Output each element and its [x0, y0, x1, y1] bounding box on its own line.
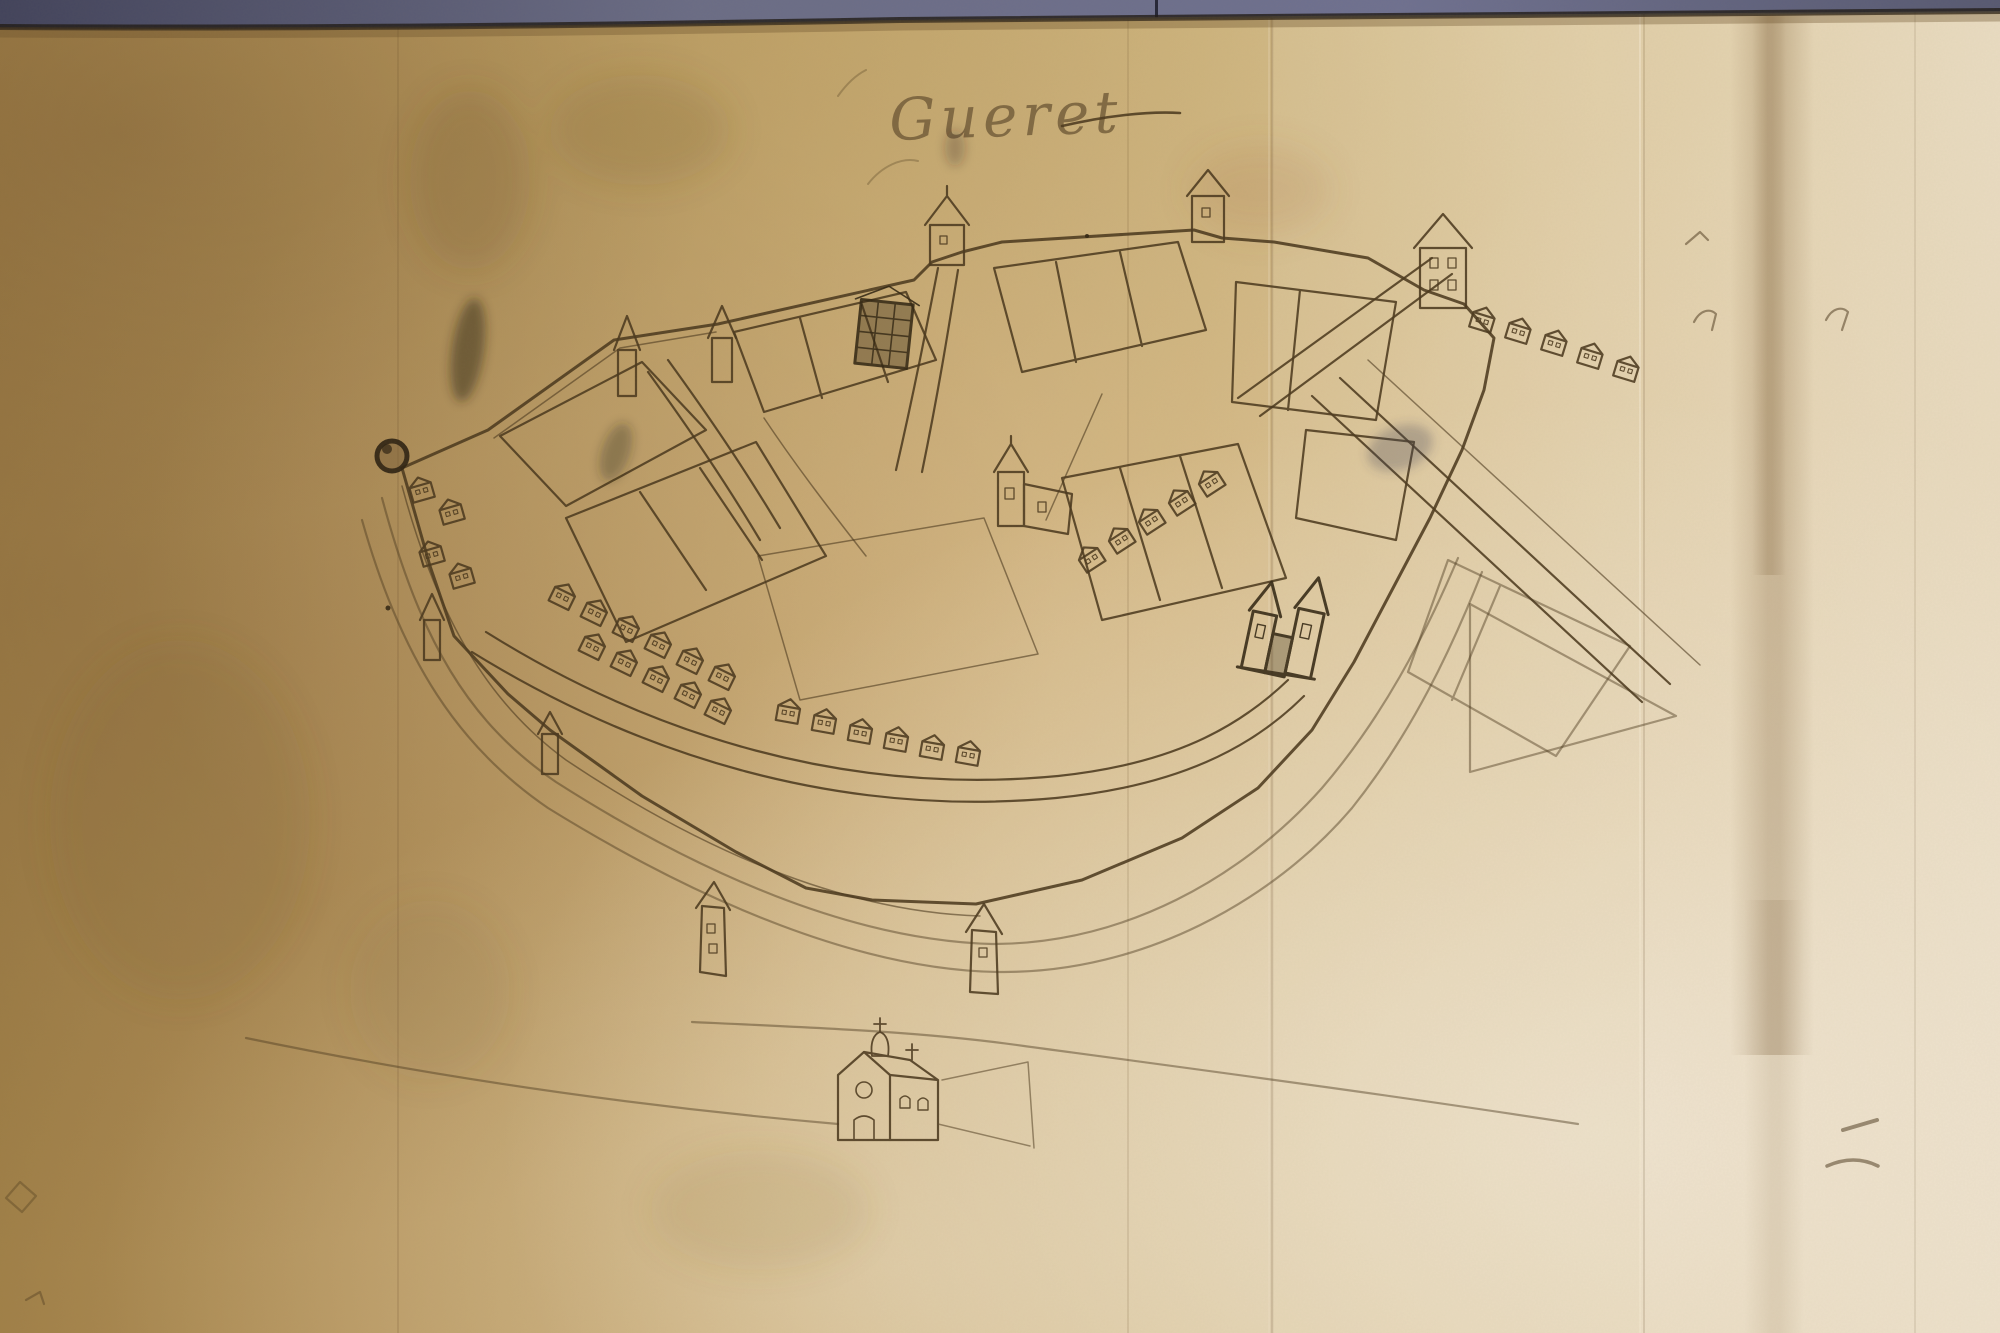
map-photo-svg: Gueret [0, 0, 2000, 1333]
paper-grain-overlay [0, 0, 2000, 1333]
photographed-map: Gueret [0, 0, 2000, 1333]
